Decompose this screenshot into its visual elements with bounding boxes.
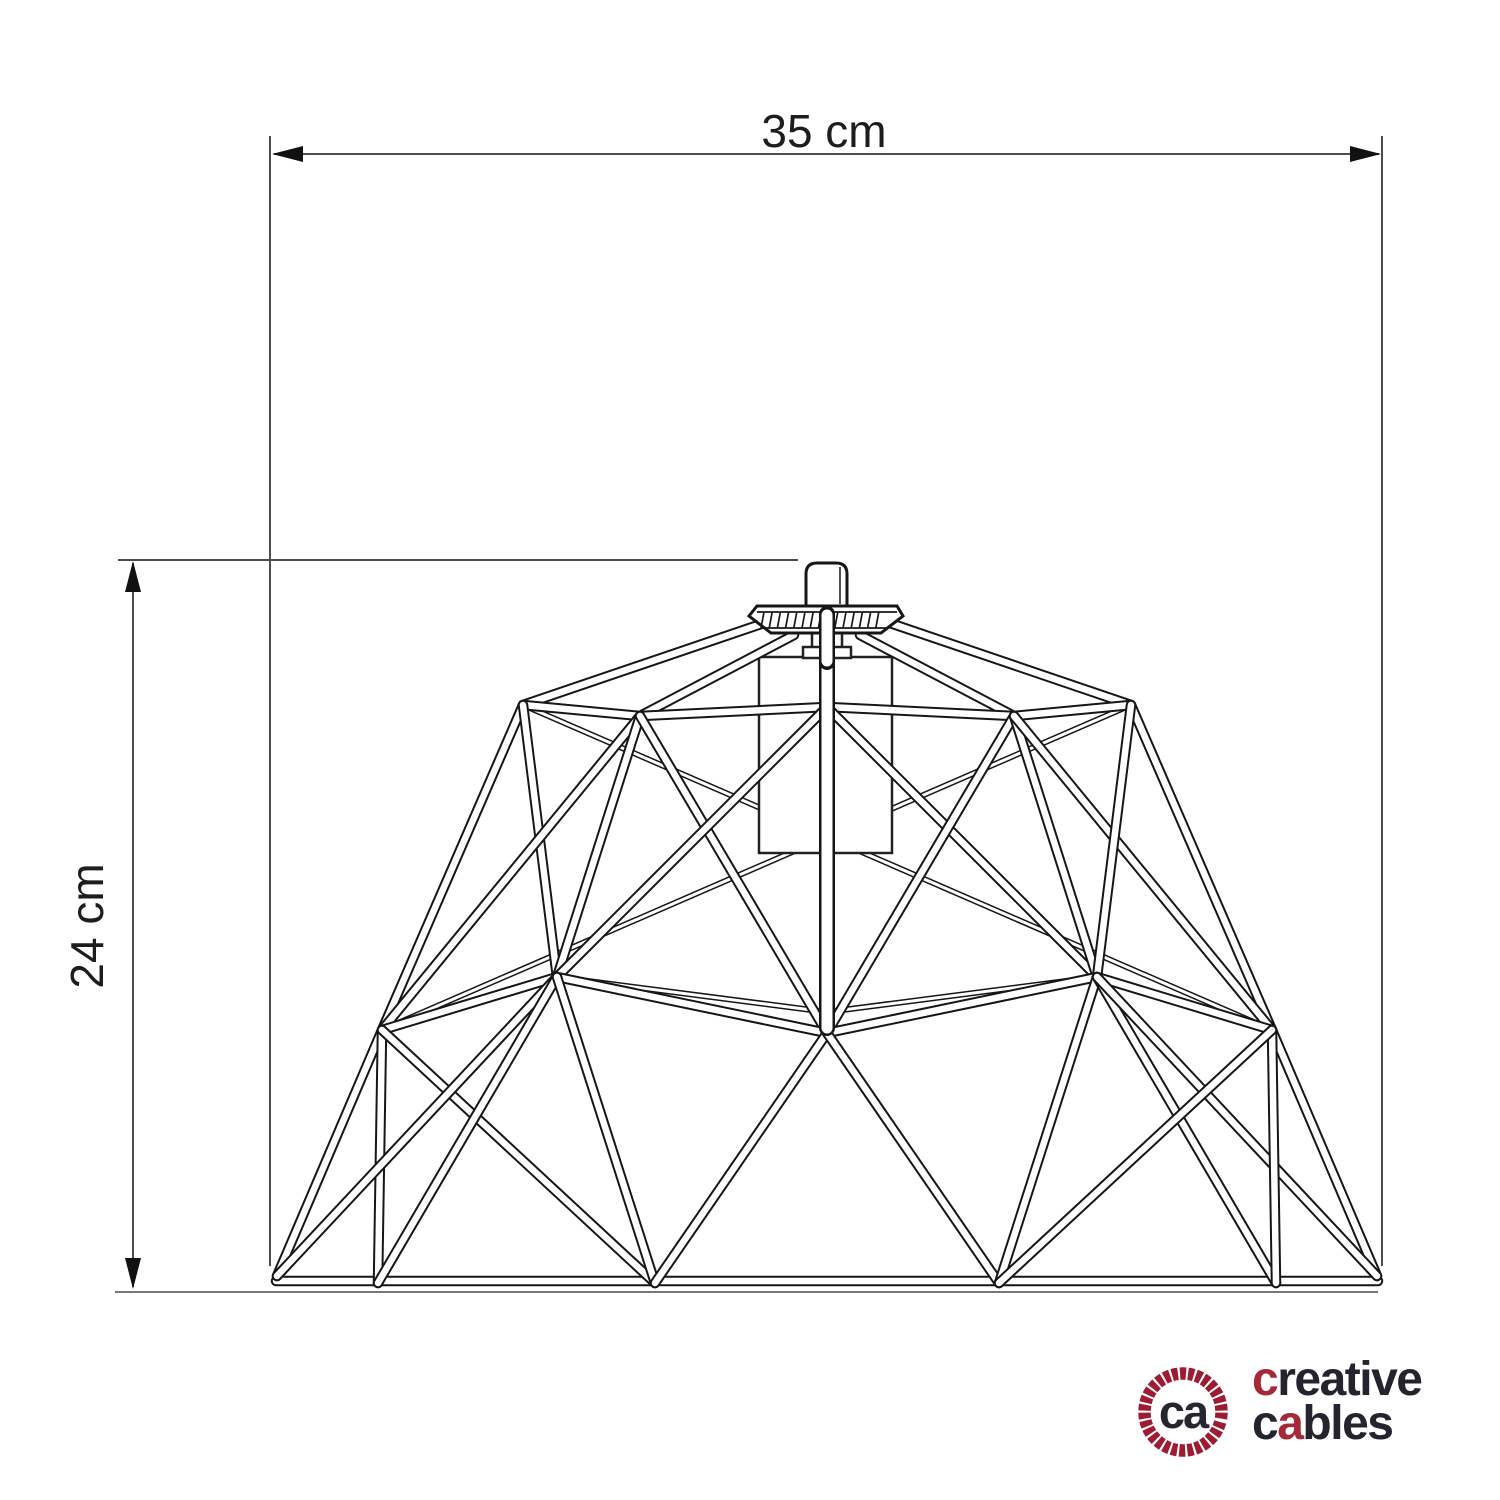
dome-main-struts	[276, 616, 1378, 1283]
height-dimension: 24 cm	[61, 561, 141, 1289]
logo-letter-accent2: a	[1277, 1397, 1302, 1450]
logo-word2-pre: c	[1252, 1397, 1277, 1450]
width-dimension-label: 35 cm	[761, 105, 886, 157]
socket-cap	[806, 563, 847, 606]
brand-logo: ca creative cables	[1126, 1358, 1421, 1474]
width-dimension: 35 cm	[272, 105, 1381, 162]
width-arrow-left-icon	[272, 146, 303, 162]
logo-word-creative: creative	[1252, 1358, 1421, 1402]
width-arrow-right-icon	[1350, 146, 1381, 162]
logo-wordmark: creative cables	[1252, 1358, 1421, 1446]
logo-word-cables: cables	[1252, 1402, 1421, 1446]
logo-ring: ca	[1126, 1358, 1242, 1474]
socket-cap-body	[806, 563, 847, 606]
logo-monogram: ca	[1159, 1385, 1210, 1438]
dome-cage-wireframe	[276, 563, 1378, 1283]
height-arrow-bottom-icon	[125, 1258, 141, 1289]
height-dimension-label: 24 cm	[61, 863, 113, 988]
dimension-drawing: 35 cm 24 cm	[0, 0, 1500, 1500]
height-arrow-top-icon	[125, 561, 141, 592]
logo-word2-rest: bles	[1302, 1397, 1392, 1450]
